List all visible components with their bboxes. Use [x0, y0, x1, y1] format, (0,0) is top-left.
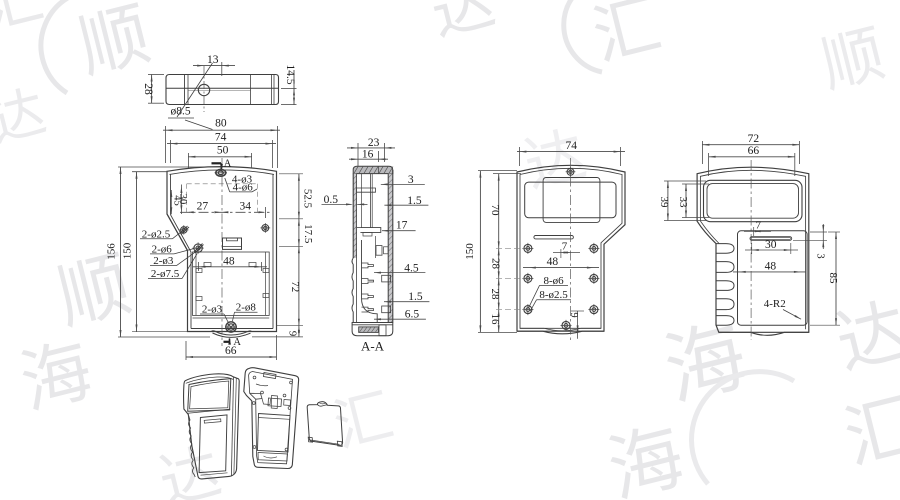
svg-text:2-ø2.5: 2-ø2.5 — [142, 228, 171, 240]
svg-text:72: 72 — [748, 133, 760, 145]
svg-text:达: 达 — [829, 292, 900, 384]
svg-text:48: 48 — [547, 256, 559, 268]
svg-text:28: 28 — [489, 289, 501, 301]
svg-text:80: 80 — [215, 118, 227, 130]
svg-text:74: 74 — [215, 132, 227, 144]
svg-text:7: 7 — [756, 219, 762, 231]
svg-text:52.5: 52.5 — [302, 189, 314, 209]
svg-text:156: 156 — [106, 243, 118, 260]
svg-text:4-R2: 4-R2 — [764, 298, 786, 310]
svg-text:2-ø3: 2-ø3 — [153, 255, 174, 267]
svg-text:48: 48 — [765, 260, 777, 272]
svg-text:150: 150 — [464, 243, 476, 260]
svg-text:33: 33 — [677, 197, 689, 209]
svg-text:海: 海 — [13, 332, 100, 424]
svg-text:48: 48 — [223, 255, 235, 267]
svg-text:28: 28 — [142, 83, 154, 95]
svg-text:16: 16 — [489, 314, 501, 326]
svg-text:2-ø8: 2-ø8 — [236, 302, 257, 314]
svg-text:50: 50 — [217, 145, 229, 157]
svg-text:13: 13 — [207, 54, 219, 66]
svg-text:17.5: 17.5 — [302, 224, 314, 244]
svg-text:14.5: 14.5 — [284, 64, 296, 84]
svg-text:汇: 汇 — [327, 383, 399, 460]
svg-text:23: 23 — [368, 137, 380, 149]
svg-text:3: 3 — [815, 253, 826, 258]
svg-text:8-ø6: 8-ø6 — [544, 275, 565, 287]
svg-text:17: 17 — [396, 220, 408, 232]
svg-text:4-ø6: 4-ø6 — [233, 181, 254, 193]
svg-text:达: 达 — [0, 81, 52, 153]
svg-text:达: 达 — [425, 0, 502, 49]
svg-text:9: 9 — [286, 331, 298, 337]
svg-text:16: 16 — [362, 148, 374, 160]
svg-text:66: 66 — [225, 345, 237, 357]
svg-text:7: 7 — [562, 241, 568, 253]
svg-text:顺: 顺 — [71, 0, 158, 88]
svg-text:A: A — [224, 159, 232, 170]
svg-text:66: 66 — [748, 145, 760, 157]
svg-text:39: 39 — [658, 197, 670, 209]
svg-text:汇: 汇 — [837, 387, 900, 479]
svg-text:72: 72 — [289, 281, 301, 292]
svg-text:28: 28 — [489, 258, 501, 270]
svg-text:汇: 汇 — [586, 0, 668, 75]
svg-text:海: 海 — [600, 416, 692, 500]
svg-text:74: 74 — [565, 140, 577, 152]
svg-text:达: 达 — [518, 121, 592, 200]
svg-text:27: 27 — [197, 201, 209, 213]
svg-text:顺: 顺 — [815, 20, 892, 101]
svg-text:150: 150 — [122, 242, 134, 259]
svg-text:9: 9 — [568, 312, 579, 317]
svg-text:2-ø7.5: 2-ø7.5 — [151, 268, 180, 280]
svg-text:30: 30 — [177, 194, 188, 205]
svg-text:85: 85 — [827, 273, 839, 285]
svg-text:70: 70 — [489, 205, 501, 217]
svg-text:30: 30 — [765, 239, 777, 251]
svg-text:A-A: A-A — [361, 339, 385, 354]
svg-text:2-ø6: 2-ø6 — [152, 243, 173, 255]
svg-text:8-ø2.5: 8-ø2.5 — [539, 289, 568, 301]
svg-text:ø8.5: ø8.5 — [170, 106, 190, 118]
svg-text:2-ø3: 2-ø3 — [202, 303, 223, 315]
svg-text:34: 34 — [240, 201, 252, 213]
